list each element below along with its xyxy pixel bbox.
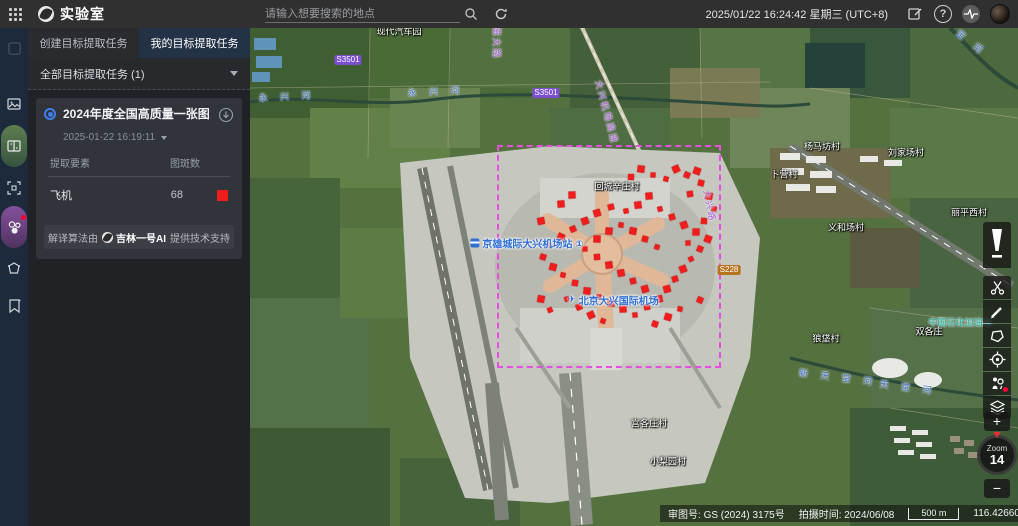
map-toolbar bbox=[982, 222, 1012, 419]
activity-icon[interactable] bbox=[962, 5, 980, 23]
element-name: 飞机 bbox=[50, 187, 72, 203]
road-label: 磁大路 bbox=[491, 28, 504, 60]
river-label: 永 兴 河 bbox=[258, 88, 316, 104]
aircraft-detection[interactable] bbox=[704, 235, 713, 244]
zoom-in-button[interactable]: + bbox=[984, 412, 1010, 431]
result-table-header: 提取要素 图斑数 bbox=[48, 155, 230, 177]
notification-dot bbox=[21, 215, 26, 220]
download-icon[interactable] bbox=[218, 107, 234, 128]
search-input[interactable] bbox=[265, 5, 460, 23]
capture-time: 拍摄时间: 2024/06/08 bbox=[799, 506, 895, 521]
result-table: 提取要素 图斑数 飞机 68 bbox=[48, 155, 230, 209]
jilin-logo-icon bbox=[38, 6, 54, 22]
aircraft-detection[interactable] bbox=[677, 306, 683, 312]
aircraft-detection[interactable] bbox=[671, 164, 680, 173]
route-badge: S3501 bbox=[532, 88, 559, 98]
tool-notification-dot bbox=[1003, 387, 1008, 392]
aircraft-detection[interactable] bbox=[569, 225, 577, 233]
map-canvas[interactable]: 回城辛庄村杨马坊村刘家场村卜营村义和场村丽平西村宫各庄村小梨园村狼垡村双各庄现代… bbox=[250, 28, 1018, 526]
aircraft-detection[interactable] bbox=[668, 213, 675, 220]
draw-tool[interactable] bbox=[983, 300, 1011, 323]
aircraft-detection[interactable] bbox=[697, 179, 704, 186]
village-label: 现代汽车园 bbox=[376, 28, 421, 38]
aircraft-detection[interactable] bbox=[617, 269, 625, 277]
aircraft-detection[interactable] bbox=[696, 296, 704, 304]
aircraft-detection[interactable] bbox=[593, 209, 602, 218]
aircraft-detection[interactable] bbox=[537, 295, 545, 303]
locate-tool[interactable] bbox=[983, 348, 1011, 371]
grid-dots-icon bbox=[9, 8, 22, 21]
route-badge: S228 bbox=[718, 265, 741, 275]
credit-suffix: 提供技术支持 bbox=[170, 230, 230, 245]
algorithm-credit[interactable]: 解译算法由 吉林一号AI 提供技术支持 bbox=[44, 225, 234, 249]
aircraft-detection[interactable] bbox=[572, 280, 579, 287]
filter-label: 全部目标提取任务 (1) bbox=[40, 66, 145, 82]
frame-select-icon[interactable] bbox=[0, 174, 28, 202]
aircraft-detection[interactable] bbox=[650, 172, 655, 177]
map-license: 审图号: GS (2024) 3175号 bbox=[668, 506, 785, 521]
aircraft-detection[interactable] bbox=[678, 264, 687, 273]
aircraft-detection[interactable] bbox=[680, 221, 689, 230]
bookmark-icon[interactable] bbox=[0, 292, 28, 320]
jilin-mini-logo-icon bbox=[102, 232, 113, 243]
poi-label[interactable]: 京雄城际大兴机场站 ① bbox=[470, 236, 583, 251]
aircraft-detection[interactable] bbox=[568, 191, 575, 198]
license-value: GS (2024) 3175号 bbox=[704, 510, 785, 521]
help-icon[interactable]: ? bbox=[934, 5, 952, 23]
aircraft-detection[interactable] bbox=[692, 228, 699, 235]
aircraft-detection[interactable] bbox=[618, 222, 624, 228]
menu-icon[interactable] bbox=[0, 34, 28, 62]
aircraft-detection[interactable] bbox=[663, 285, 672, 294]
aircraft-detection[interactable] bbox=[557, 200, 565, 208]
table-row[interactable]: 飞机 68 bbox=[48, 177, 230, 209]
village-label: 丽平西村 bbox=[951, 206, 987, 219]
clip-tool[interactable] bbox=[983, 276, 1011, 299]
road-label: 大兴机场高速 bbox=[592, 78, 622, 145]
aircraft-detection[interactable] bbox=[683, 171, 691, 179]
aircraft-detection[interactable] bbox=[688, 256, 695, 263]
app-root: 回城辛庄村杨马坊村刘家场村卜营村义和场村丽平西村宫各庄村小梨园村狼垡村双各庄现代… bbox=[0, 0, 1018, 526]
aircraft-detection[interactable] bbox=[645, 192, 653, 200]
aircraft-detection[interactable] bbox=[687, 191, 694, 198]
app-grid-icon[interactable] bbox=[0, 0, 30, 28]
task-card-sub: 2025-01-22 16:19:11 bbox=[63, 132, 234, 143]
aircraft-detection[interactable] bbox=[539, 253, 547, 261]
village-label: 杨马坊村 bbox=[804, 140, 840, 153]
river-label: 天 堂 河 bbox=[879, 377, 937, 397]
task-expand-chevron-icon[interactable] bbox=[161, 136, 167, 140]
aircraft-detection[interactable] bbox=[629, 227, 637, 235]
river-label: 永 定 河 bbox=[937, 28, 990, 59]
poi-text: 京雄城际大兴机场站 ① bbox=[482, 236, 583, 251]
top-bar: 实验室 2025/01/22 16:24:42 星期三 (UTC+8) ? bbox=[0, 0, 1018, 28]
datetime-label: 2025/01/22 16:24:42 星期三 (UTC+8) bbox=[705, 6, 888, 22]
aircraft-detection[interactable] bbox=[549, 263, 558, 272]
task-panel: 创建目标提取任务 我的目标提取任务 全部目标提取任务 (1) 2024年度全国高… bbox=[28, 28, 250, 526]
aircraft-detection[interactable] bbox=[547, 307, 554, 314]
aircraft-detection[interactable] bbox=[657, 206, 663, 212]
polygon-draw-icon[interactable] bbox=[0, 254, 28, 282]
aircraft-detection[interactable] bbox=[586, 310, 595, 319]
search-icon[interactable] bbox=[460, 3, 482, 25]
app-logo[interactable]: 实验室 bbox=[38, 4, 105, 24]
streetview-person-tool[interactable] bbox=[983, 372, 1011, 395]
village-label: 回城辛庄村 bbox=[594, 180, 639, 193]
edit-note-icon[interactable] bbox=[906, 5, 924, 23]
aircraft-detection[interactable] bbox=[671, 275, 679, 283]
task-tabs: 创建目标提取任务 我的目标提取任务 bbox=[28, 28, 250, 58]
aircraft-detection[interactable] bbox=[605, 227, 613, 235]
zoom-out-button[interactable]: − bbox=[984, 479, 1010, 498]
aircraft-detection[interactable] bbox=[685, 240, 690, 245]
task-radio[interactable] bbox=[44, 108, 56, 120]
swipe-compare-tool[interactable] bbox=[983, 222, 1011, 268]
task-card[interactable]: 2024年度全国高质量一张图 2025-01-22 16:19:11 提取要素 … bbox=[36, 98, 242, 259]
capture-value: 2024/06/08 bbox=[844, 510, 894, 521]
brand-name: 吉林一号AI bbox=[116, 230, 166, 245]
element-color-swatch bbox=[217, 190, 228, 201]
chevron-down-icon bbox=[230, 71, 238, 76]
top-bar-right: 2025/01/22 16:24:42 星期三 (UTC+8) ? bbox=[705, 0, 1010, 28]
scale-bar: 500 m bbox=[908, 508, 959, 520]
aircraft-detection[interactable] bbox=[693, 167, 702, 176]
route-badge: S3501 bbox=[334, 55, 361, 65]
aircraft-detection[interactable] bbox=[629, 277, 636, 284]
task-timestamp: 2025-01-22 16:19:11 bbox=[63, 132, 155, 143]
imagery-icon[interactable] bbox=[0, 90, 28, 118]
col-element-label: 提取要素 bbox=[50, 155, 90, 170]
tab-create-task[interactable]: 创建目标提取任务 bbox=[28, 28, 139, 58]
refresh-icon[interactable] bbox=[490, 3, 512, 25]
village-label: 狼垡村 bbox=[812, 332, 839, 345]
river-label: 永 兴 河 bbox=[407, 83, 465, 99]
aircraft-detection[interactable] bbox=[651, 320, 659, 328]
aircraft-detection[interactable] bbox=[537, 217, 545, 225]
village-label: 卜营村 bbox=[770, 168, 797, 181]
zoom-control: + Zoom 14 − bbox=[982, 412, 1012, 498]
aircraft-detection[interactable] bbox=[607, 203, 614, 210]
task-card-head: 2024年度全国高质量一张图 bbox=[44, 107, 234, 128]
search-area bbox=[265, 0, 512, 28]
village-label: 刘家场村 bbox=[888, 146, 924, 159]
aircraft-detection[interactable] bbox=[581, 217, 590, 226]
app-title: 实验室 bbox=[60, 4, 105, 24]
plane-icon: ✈ bbox=[567, 295, 575, 306]
aircraft-detection[interactable] bbox=[632, 312, 637, 317]
brand-label: 吉林一号AI bbox=[102, 230, 166, 245]
aircraft-detection[interactable] bbox=[594, 254, 600, 260]
poi-label[interactable]: ✈北京大兴国际机场 bbox=[567, 293, 658, 308]
village-label: 宫各庄村 bbox=[631, 417, 667, 430]
capture-label: 拍摄时间: bbox=[799, 510, 842, 521]
cursor-coordinates: 116.42660, 39.53656 bbox=[973, 508, 1018, 519]
aircraft-detection[interactable] bbox=[634, 201, 642, 209]
village-label: 小梨园村 bbox=[650, 455, 686, 468]
user-avatar[interactable] bbox=[990, 4, 1010, 24]
task-filter-dropdown[interactable]: 全部目标提取任务 (1) bbox=[28, 58, 250, 90]
left-icon-rail bbox=[0, 28, 28, 526]
aircraft-detection[interactable] bbox=[560, 272, 566, 278]
zoom-dial-tick bbox=[993, 432, 1001, 438]
split-compare-icon[interactable] bbox=[0, 132, 28, 160]
polygon-tool[interactable] bbox=[983, 324, 1011, 347]
zoom-level: 14 bbox=[990, 453, 1004, 466]
zoom-dial[interactable]: Zoom 14 bbox=[977, 435, 1017, 475]
map-layer: 回城辛庄村杨马坊村刘家场村卜营村义和场村丽平西村宫各庄村小梨园村狼垡村双各庄现代… bbox=[250, 28, 1018, 526]
poi-text: 北京大兴国际机场 bbox=[579, 293, 659, 308]
aircraft-detection[interactable] bbox=[623, 208, 629, 214]
task-title: 2024年度全国高质量一张图 bbox=[63, 107, 211, 121]
aircraft-detection[interactable] bbox=[641, 235, 648, 242]
aircraft-detection[interactable] bbox=[605, 261, 613, 269]
aircraft-detection[interactable] bbox=[593, 235, 600, 242]
license-label: 审图号: bbox=[668, 510, 701, 521]
river-label: 新 天 堂 河 bbox=[798, 366, 878, 388]
aircraft-detection[interactable] bbox=[654, 244, 660, 250]
village-label: 义和场村 bbox=[828, 221, 864, 234]
map-status-bar: 审图号: GS (2024) 3175号 拍摄时间: 2024/06/08 50… bbox=[660, 505, 1018, 522]
col-count-label: 图斑数 bbox=[170, 155, 200, 170]
element-count: 68 bbox=[171, 189, 183, 201]
aircraft-detection[interactable] bbox=[600, 318, 607, 325]
aircraft-detection[interactable] bbox=[664, 313, 673, 322]
tab-my-tasks[interactable]: 我的目标提取任务 bbox=[139, 28, 250, 58]
target-extract-icon[interactable] bbox=[0, 213, 28, 241]
credit-prefix: 解译算法由 bbox=[48, 230, 98, 245]
aircraft-detection[interactable] bbox=[637, 165, 645, 173]
train-icon bbox=[470, 239, 479, 248]
aircraft-detection[interactable] bbox=[663, 176, 669, 182]
aircraft-detection[interactable] bbox=[696, 245, 704, 253]
